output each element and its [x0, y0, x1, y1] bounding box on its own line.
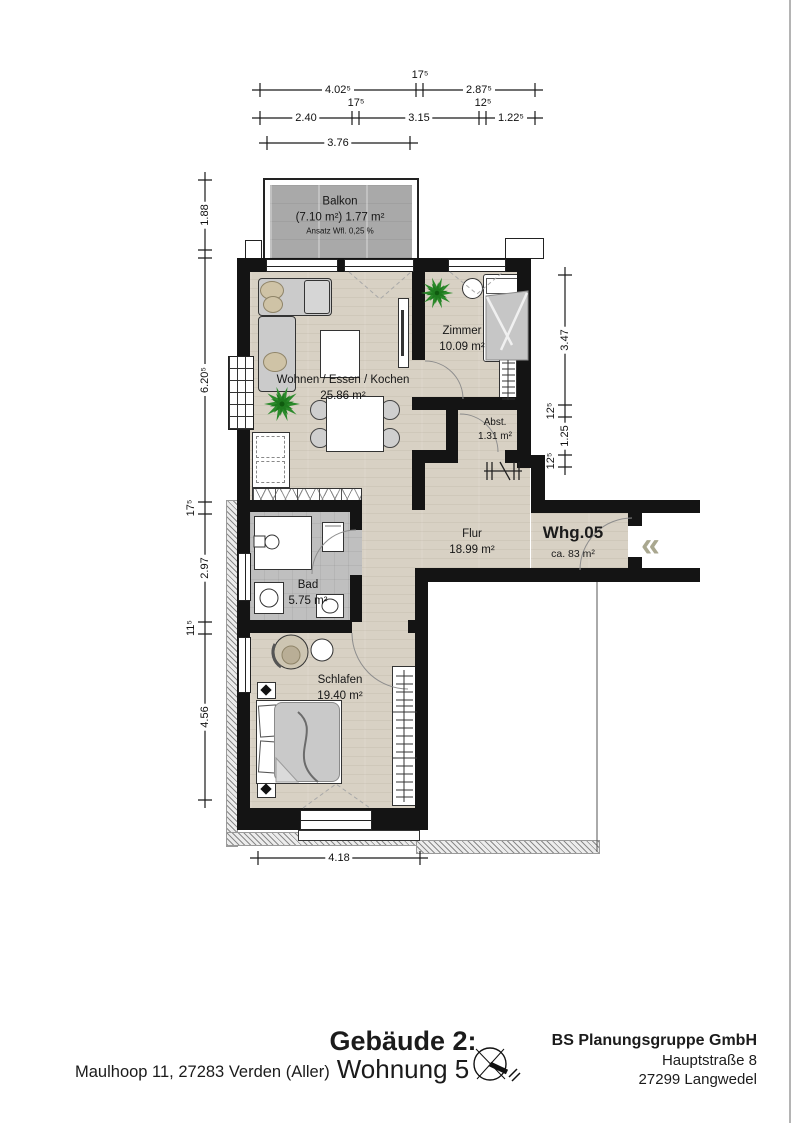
dim-left-b: 6.20⁵ [199, 364, 211, 396]
shower [254, 516, 312, 570]
dim-top2-a: 2.40 [292, 112, 319, 124]
dim-left-a: 1.88 [199, 201, 211, 228]
abst-name: Abst. [484, 417, 507, 428]
label-schlafen: Schlafen 19.40 m² [317, 672, 362, 704]
gravel-strip-bottom-step [416, 840, 600, 854]
wall-abst-bottom-right [505, 450, 531, 463]
wall-left [237, 258, 250, 830]
unit-title: Wohnung 5 [303, 1055, 503, 1084]
dim-right-d: 12⁵ [545, 453, 557, 470]
label-bad: Bad 5.75 m² [289, 577, 328, 609]
parapet-step-left [245, 240, 262, 259]
washbasin-cabinet [254, 582, 284, 614]
schlafen-area: 19.40 m² [317, 688, 362, 704]
balkon-name: Balkon [322, 195, 357, 207]
entry-jamb-top [628, 513, 642, 526]
dim-left-d: 2.97 [199, 554, 211, 581]
label-flur: Flur 18.99 m² [449, 526, 494, 558]
dim-left-e: 11⁵ [185, 620, 197, 636]
dim-bottom-a: 4.18 [325, 852, 352, 864]
dim-top1-b: 2.87⁵ [463, 84, 495, 96]
dim-top2-mid2: 12⁵ [475, 97, 492, 109]
balcony-door [344, 259, 414, 272]
bad-area: 5.75 m² [289, 593, 328, 609]
bad-name: Bad [298, 579, 318, 591]
window-living-left [266, 259, 338, 272]
zimmer-stool [462, 278, 483, 299]
schlafen-wardrobe [392, 666, 417, 806]
wall-abst-left [446, 410, 458, 450]
wall-corridor-top [545, 500, 700, 513]
sofa-armrest [304, 280, 330, 314]
wohnen-area: 25.86 m² [277, 388, 410, 404]
bed-duvet [274, 702, 340, 782]
dim-left-f: 4.56 [199, 703, 211, 730]
dim-right-c: 1.25 [559, 422, 571, 449]
wall-bad-right-upper [350, 512, 362, 530]
dim-top1-mid: 17⁵ [412, 69, 429, 81]
wohnen-name: Wohnen / Essen / Kochen [277, 374, 410, 386]
zimmer-area: 10.09 m² [439, 339, 484, 355]
wall-schlafen-top-right [408, 620, 428, 633]
zimmer-name: Zimmer [443, 325, 482, 337]
label-abst: Abst. 1.31 m² [478, 416, 512, 444]
title-center-block: Gebäude 2: Wohnung 5 [303, 1027, 503, 1084]
exterior-mask [428, 582, 530, 830]
sofa-cushion-3 [263, 352, 287, 372]
parapet-step-right [505, 238, 544, 259]
washing-machine [322, 522, 344, 552]
terrace-door-schlafen [300, 810, 372, 830]
abst-area: 1.31 m² [478, 430, 512, 444]
wall-corridor-bottom [415, 568, 700, 582]
kitchen-cabinet-cell-2 [256, 461, 285, 483]
wall-schlafen-top-left [237, 620, 352, 633]
sofa-cushion-2 [263, 296, 283, 313]
kitchen-cabinet-cell-1 [256, 436, 285, 458]
wall-right-zimmer-abst [517, 258, 531, 468]
dim-top3-a: 3.76 [324, 137, 351, 149]
label-balkon: Balkon (7.10 m²) 1.77 m² Ansatz Wfl. 0,2… [296, 193, 385, 236]
project-address: Maulhoop 11, 27283 Verden (Aller) [75, 1063, 330, 1082]
schlafen-name: Schlafen [318, 674, 363, 686]
dim-top2-mid1: 17⁵ [348, 97, 365, 109]
dim-left-c: 17⁵ [185, 500, 197, 517]
dim-right-b: 12⁵ [545, 403, 557, 420]
window-bad [238, 553, 251, 601]
dim-top1-a: 4.02⁵ [322, 84, 354, 96]
tv-screen [401, 310, 404, 356]
terrace-door-sill [298, 830, 420, 841]
company-block: BS Planungsgruppe GmbH Hauptstraße 8 272… [552, 1031, 757, 1089]
flur-name: Flur [462, 528, 482, 540]
building-title: Gebäude 2: [303, 1027, 503, 1055]
window-zimmer [448, 259, 506, 272]
dim-right-a: 3.47 [559, 326, 571, 353]
entry-jamb-bottom [628, 557, 642, 570]
coffee-table [320, 330, 360, 378]
label-zimmer: Zimmer 10.09 m² [439, 323, 484, 355]
floor-plan-sheet: 4.02⁵ 17⁵ 2.87⁵ 2.40 17⁵ 3.15 12⁵ 1.22⁵ … [0, 0, 794, 1123]
dim-top2-c: 1.22⁵ [495, 112, 527, 124]
wall-bad-right-lower [350, 575, 362, 622]
wall-living-flur [412, 457, 425, 510]
company-name: BS Planungsgruppe GmbH [552, 1031, 757, 1051]
wall-zimmer-bottom [412, 397, 517, 410]
apartment-area-label: ca. 83 m² [551, 548, 595, 560]
company-city: 27299 Langwedel [552, 1070, 757, 1089]
dining-table [326, 396, 384, 452]
wall-living-zimmer [412, 272, 425, 360]
nightstand-1 [257, 682, 276, 699]
label-wohnen: Wohnen / Essen / Kochen 25.86 m² [277, 372, 410, 404]
balkon-note: Ansatz Wfl. 0,25 % [296, 226, 385, 237]
dim-top2-b: 3.15 [405, 112, 432, 124]
balkon-area: (7.10 m²) 1.77 m² [296, 209, 385, 225]
wall-jog-entry [531, 455, 545, 513]
window-schlafen [238, 637, 251, 693]
window-shutter-living [228, 356, 254, 430]
flur-area: 18.99 m² [449, 542, 494, 558]
company-street: Hauptstraße 8 [552, 1051, 757, 1070]
apartment-id-label: Whg.05 [543, 523, 603, 543]
entry-direction-chevron: « [641, 528, 660, 562]
wall-bad-top [250, 500, 362, 512]
